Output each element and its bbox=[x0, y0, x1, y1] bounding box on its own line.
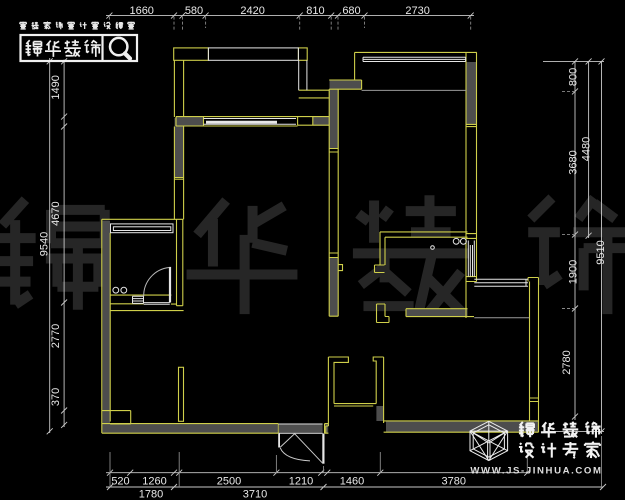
svg-text:680: 680 bbox=[342, 5, 360, 17]
svg-text:3780: 3780 bbox=[442, 476, 466, 488]
svg-text:3710: 3710 bbox=[243, 489, 267, 500]
svg-text:370: 370 bbox=[50, 388, 62, 406]
svg-text:520: 520 bbox=[111, 476, 129, 488]
svg-text:2730: 2730 bbox=[405, 5, 429, 17]
svg-text:1460: 1460 bbox=[340, 476, 364, 488]
svg-text:1660: 1660 bbox=[129, 5, 153, 17]
svg-text:9540: 9540 bbox=[39, 232, 51, 256]
svg-text:2770: 2770 bbox=[50, 324, 62, 348]
svg-text:1210: 1210 bbox=[289, 476, 313, 488]
svg-text:1900: 1900 bbox=[568, 260, 580, 284]
svg-text:4480: 4480 bbox=[581, 137, 593, 161]
svg-text:2500: 2500 bbox=[217, 476, 241, 488]
svg-text:1780: 1780 bbox=[139, 489, 163, 500]
svg-text:9510: 9510 bbox=[595, 240, 607, 264]
svg-text:2780: 2780 bbox=[561, 350, 573, 374]
svg-text:800: 800 bbox=[568, 68, 580, 86]
svg-text:4670: 4670 bbox=[50, 201, 62, 225]
svg-text:1490: 1490 bbox=[50, 75, 62, 99]
svg-text:580: 580 bbox=[185, 5, 203, 17]
svg-text:1260: 1260 bbox=[142, 476, 166, 488]
svg-text:3680: 3680 bbox=[568, 150, 580, 174]
svg-text:WWW.JS-JINHUA.COM: WWW.JS-JINHUA.COM bbox=[470, 466, 602, 477]
svg-text:810: 810 bbox=[306, 5, 324, 17]
svg-text:2420: 2420 bbox=[240, 5, 264, 17]
